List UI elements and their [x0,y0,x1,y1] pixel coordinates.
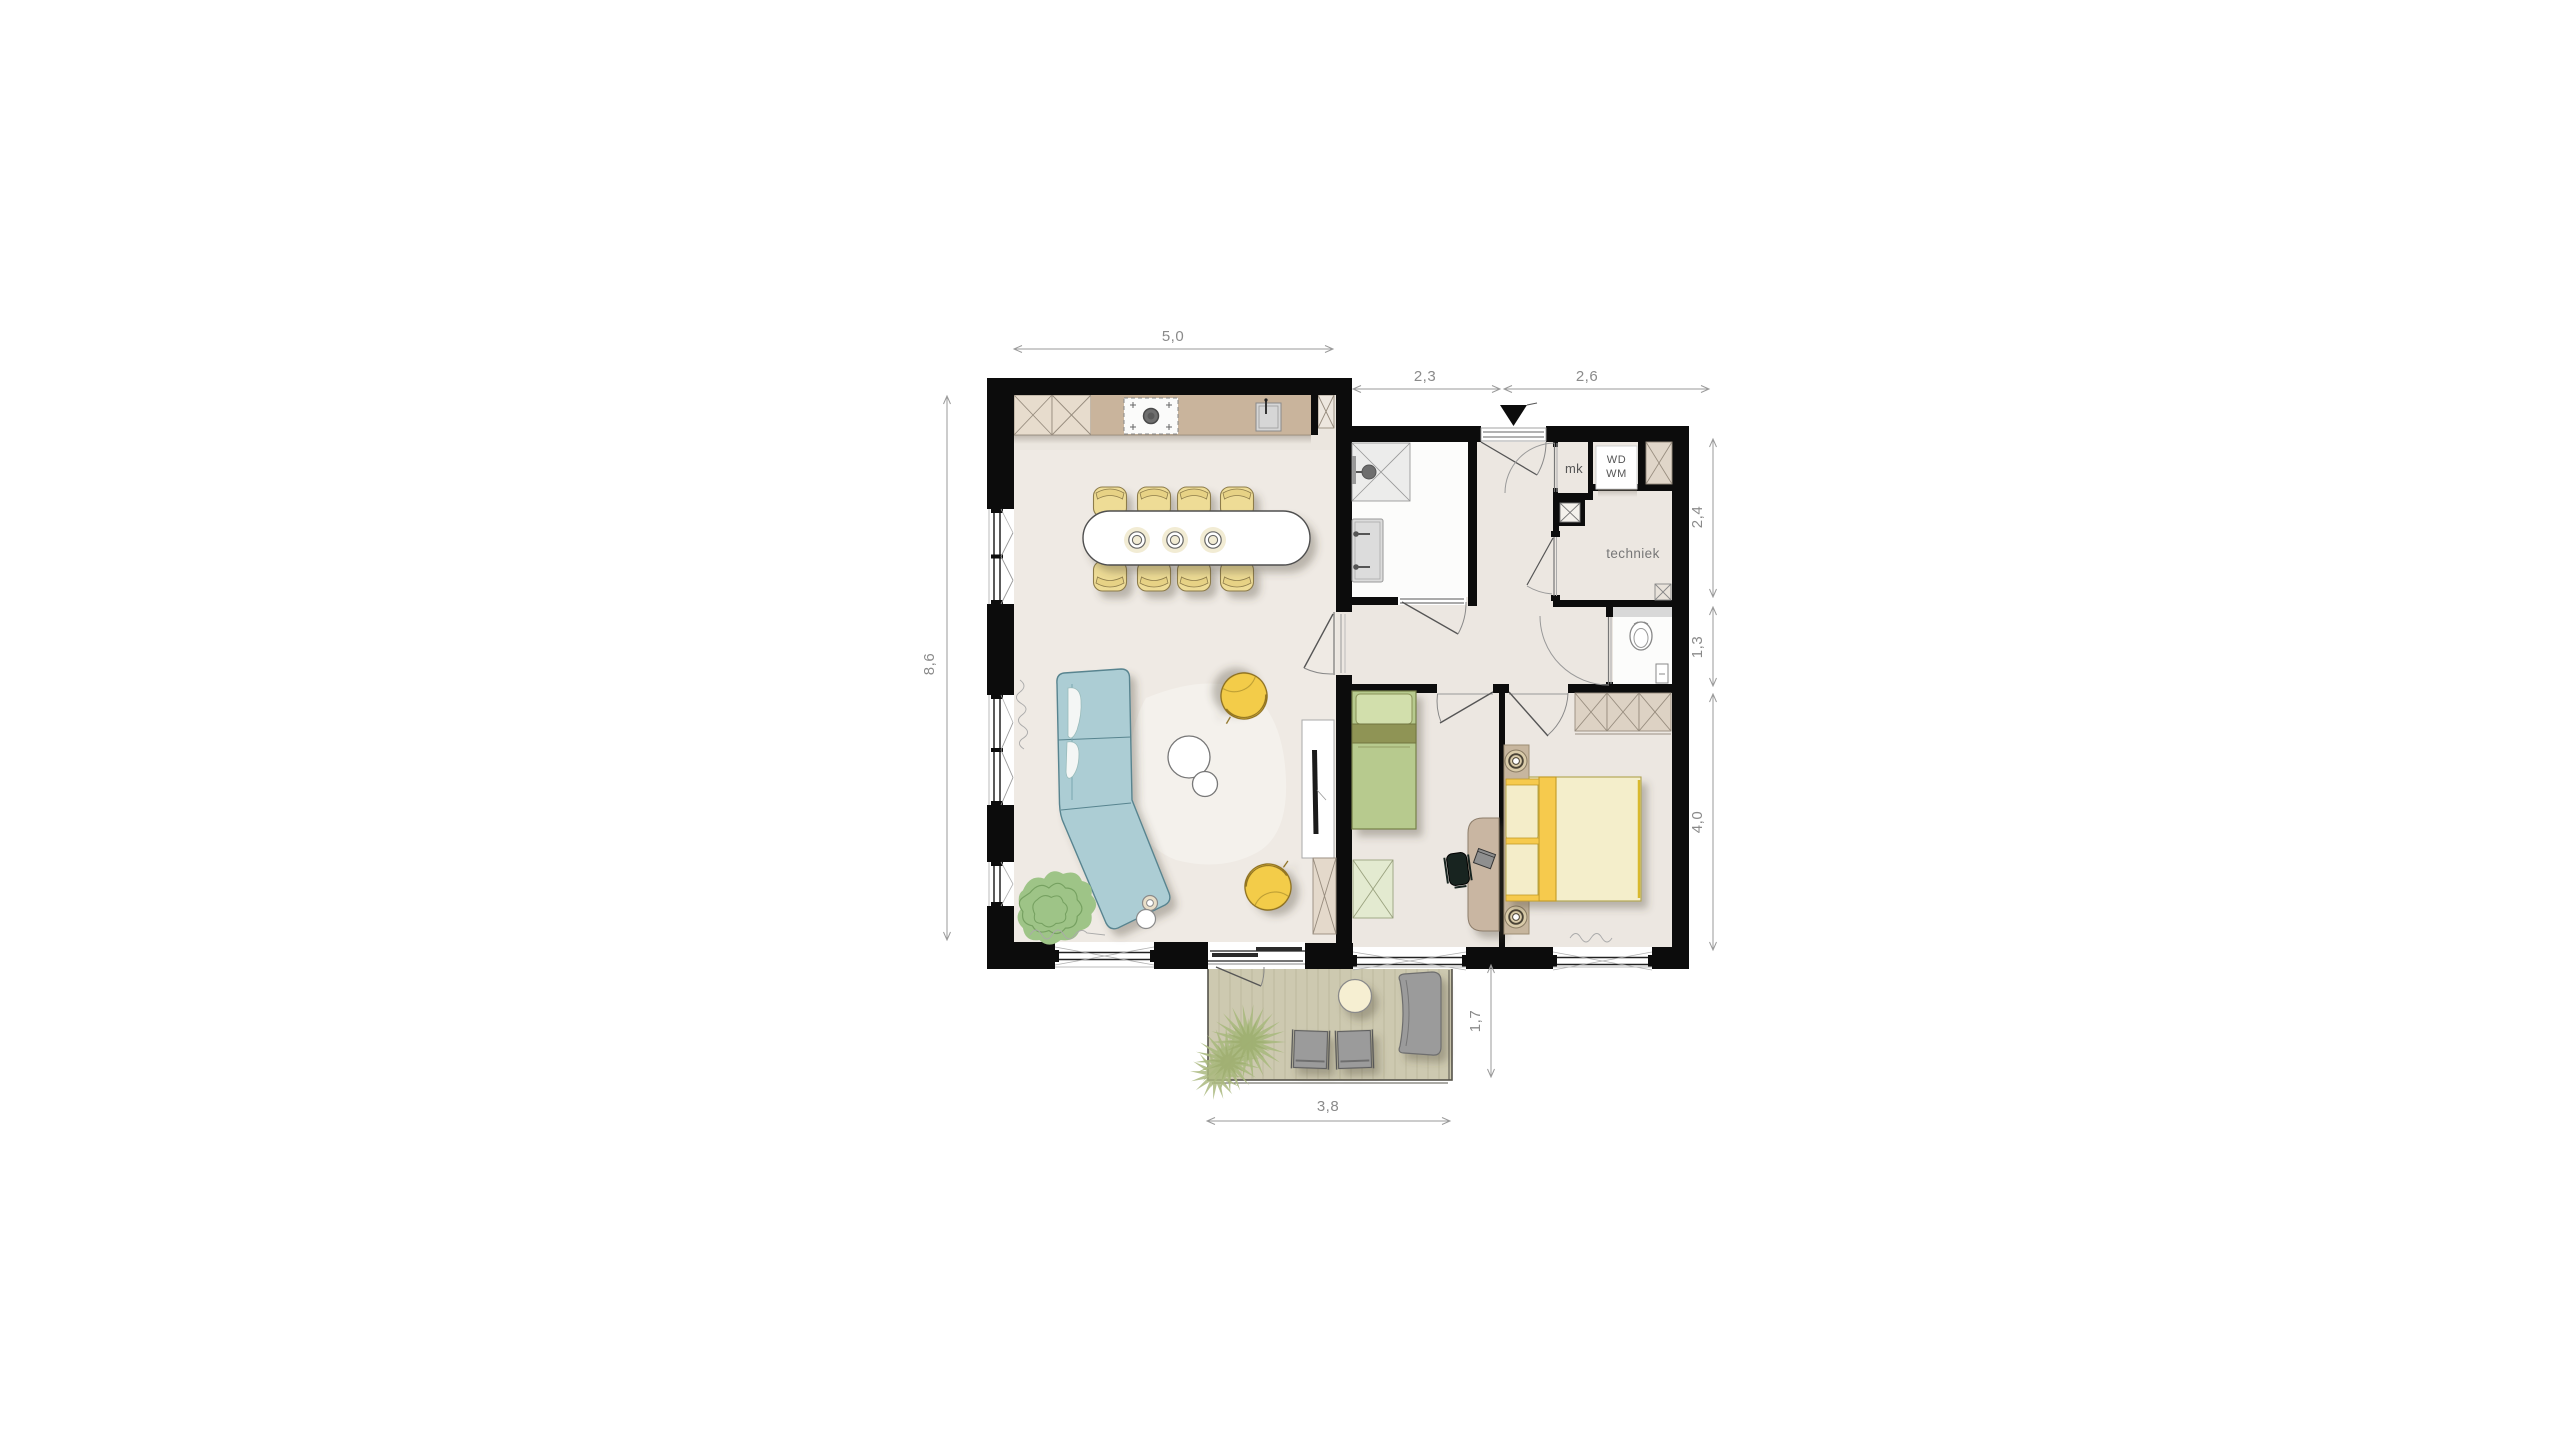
svg-text:techniek: techniek [1606,546,1659,561]
svg-text:3,8: 3,8 [1317,1098,1339,1115]
svg-text:4,0: 4,0 [1689,811,1706,833]
svg-text:2,6: 2,6 [1576,368,1598,385]
svg-text:WD: WD [1607,454,1627,466]
svg-text:WM: WM [1606,468,1627,480]
svg-text:5,0: 5,0 [1162,328,1184,345]
svg-text:8,6: 8,6 [921,653,938,675]
svg-text:mk: mk [1565,461,1583,476]
svg-text:2,4: 2,4 [1689,506,1706,528]
svg-text:1,3: 1,3 [1689,636,1706,658]
svg-text:2,3: 2,3 [1414,368,1436,385]
svg-text:1,7: 1,7 [1467,1010,1484,1032]
